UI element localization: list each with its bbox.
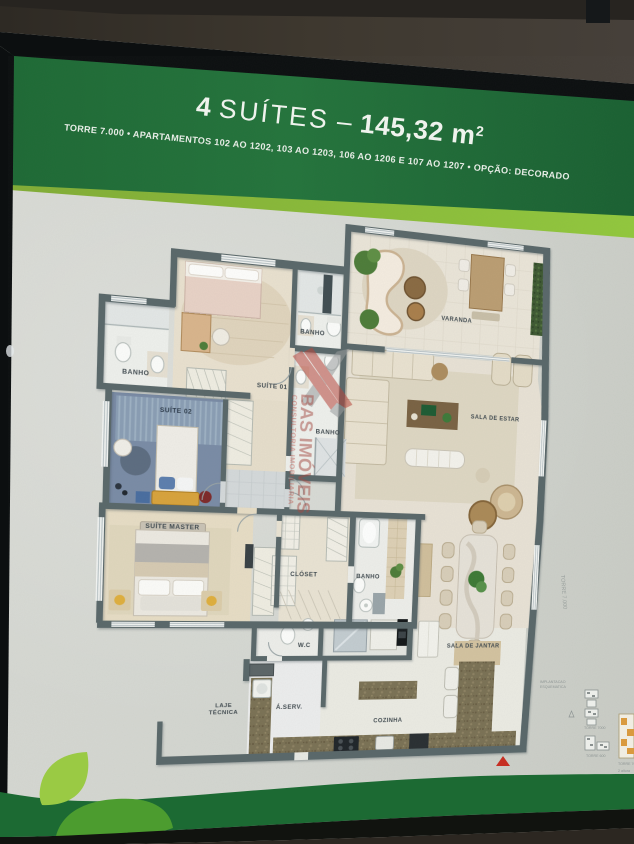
svg-text:IMPLANTACAO: IMPLANTACAO — [540, 680, 566, 684]
svg-text:TORRE 600: TORRE 600 — [586, 754, 606, 758]
svg-text:TORRE 7000: TORRE 7000 — [584, 726, 606, 730]
svg-text:ESQUEMATICA: ESQUEMATICA — [540, 685, 566, 689]
svg-text:2 altura: 2 altura — [618, 769, 630, 773]
svg-text:TORRE 700: TORRE 700 — [618, 762, 634, 766]
